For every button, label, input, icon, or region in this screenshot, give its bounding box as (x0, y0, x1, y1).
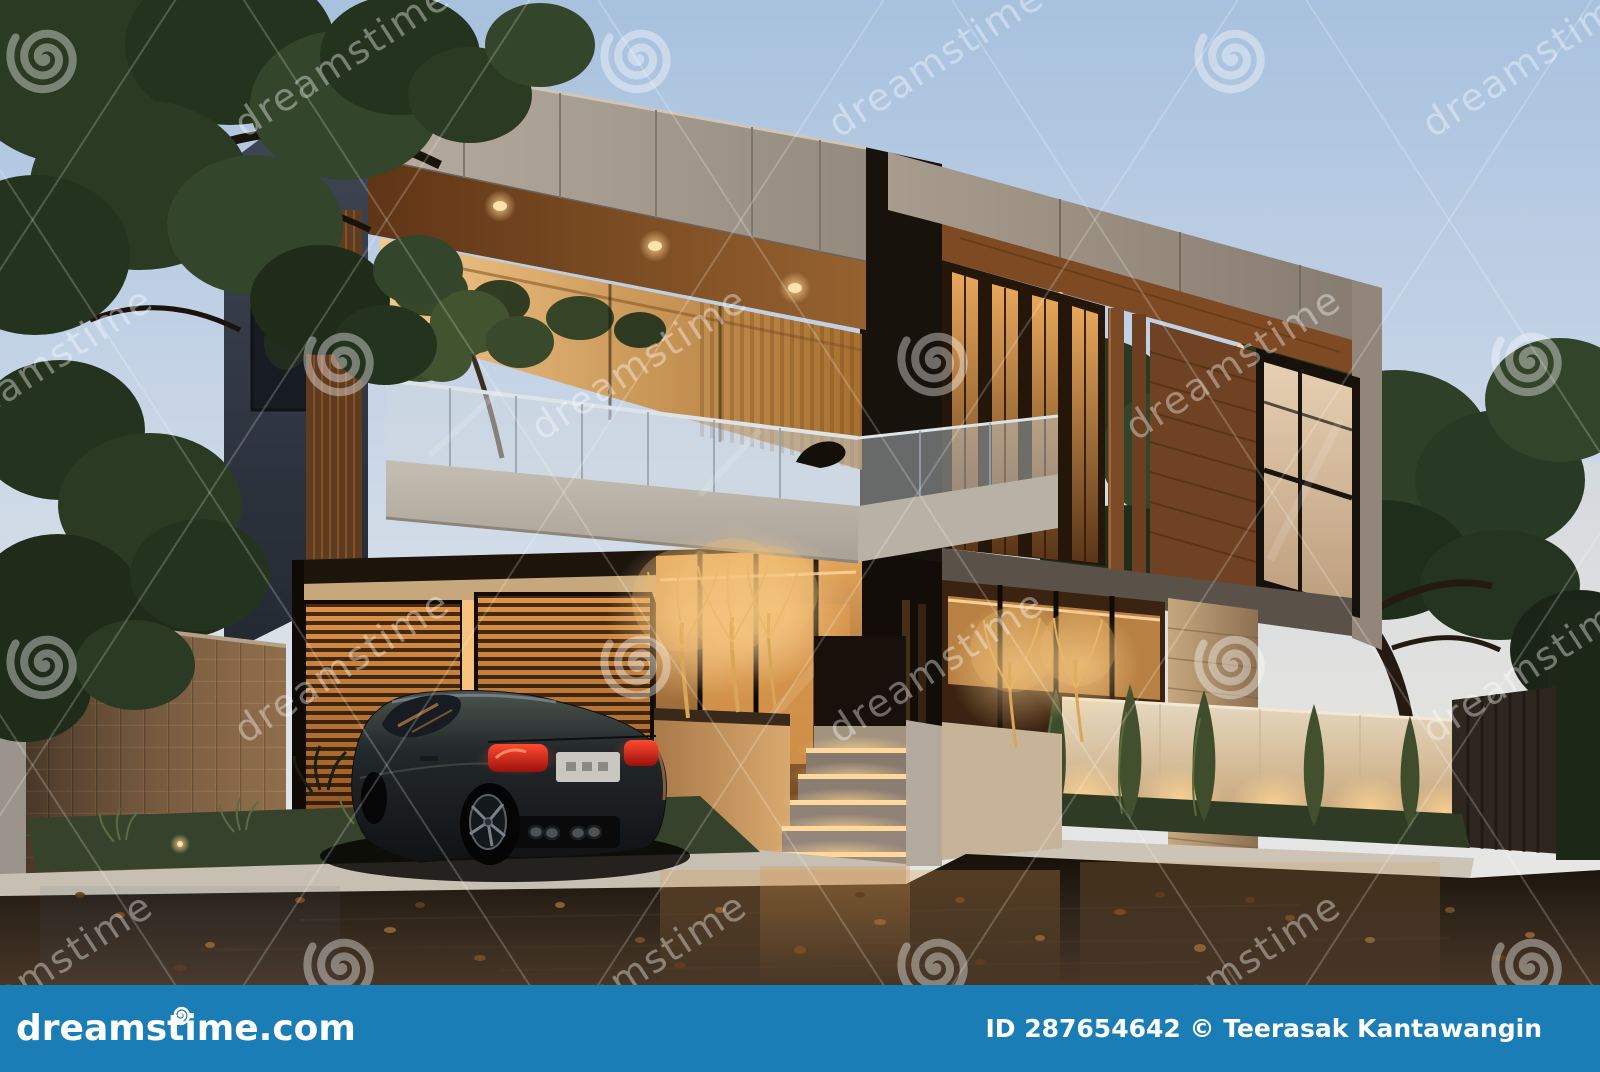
dreamstime-spiral-icon (170, 997, 192, 1019)
entry-side-wall (942, 722, 1062, 860)
dreamstime-logo: dreamstime.com (16, 1011, 356, 1047)
watermark-footer-bar: dreamstime.com ID 287654642 © Teerasak K… (0, 985, 1600, 1072)
photo-modern-house-dusk (0, 0, 1600, 985)
stock-photo: dreamstimedreamstimedreamstimedreamstime… (0, 0, 1600, 1072)
image-credit: ID 287654642 © Teerasak Kantawangin (985, 1014, 1542, 1043)
